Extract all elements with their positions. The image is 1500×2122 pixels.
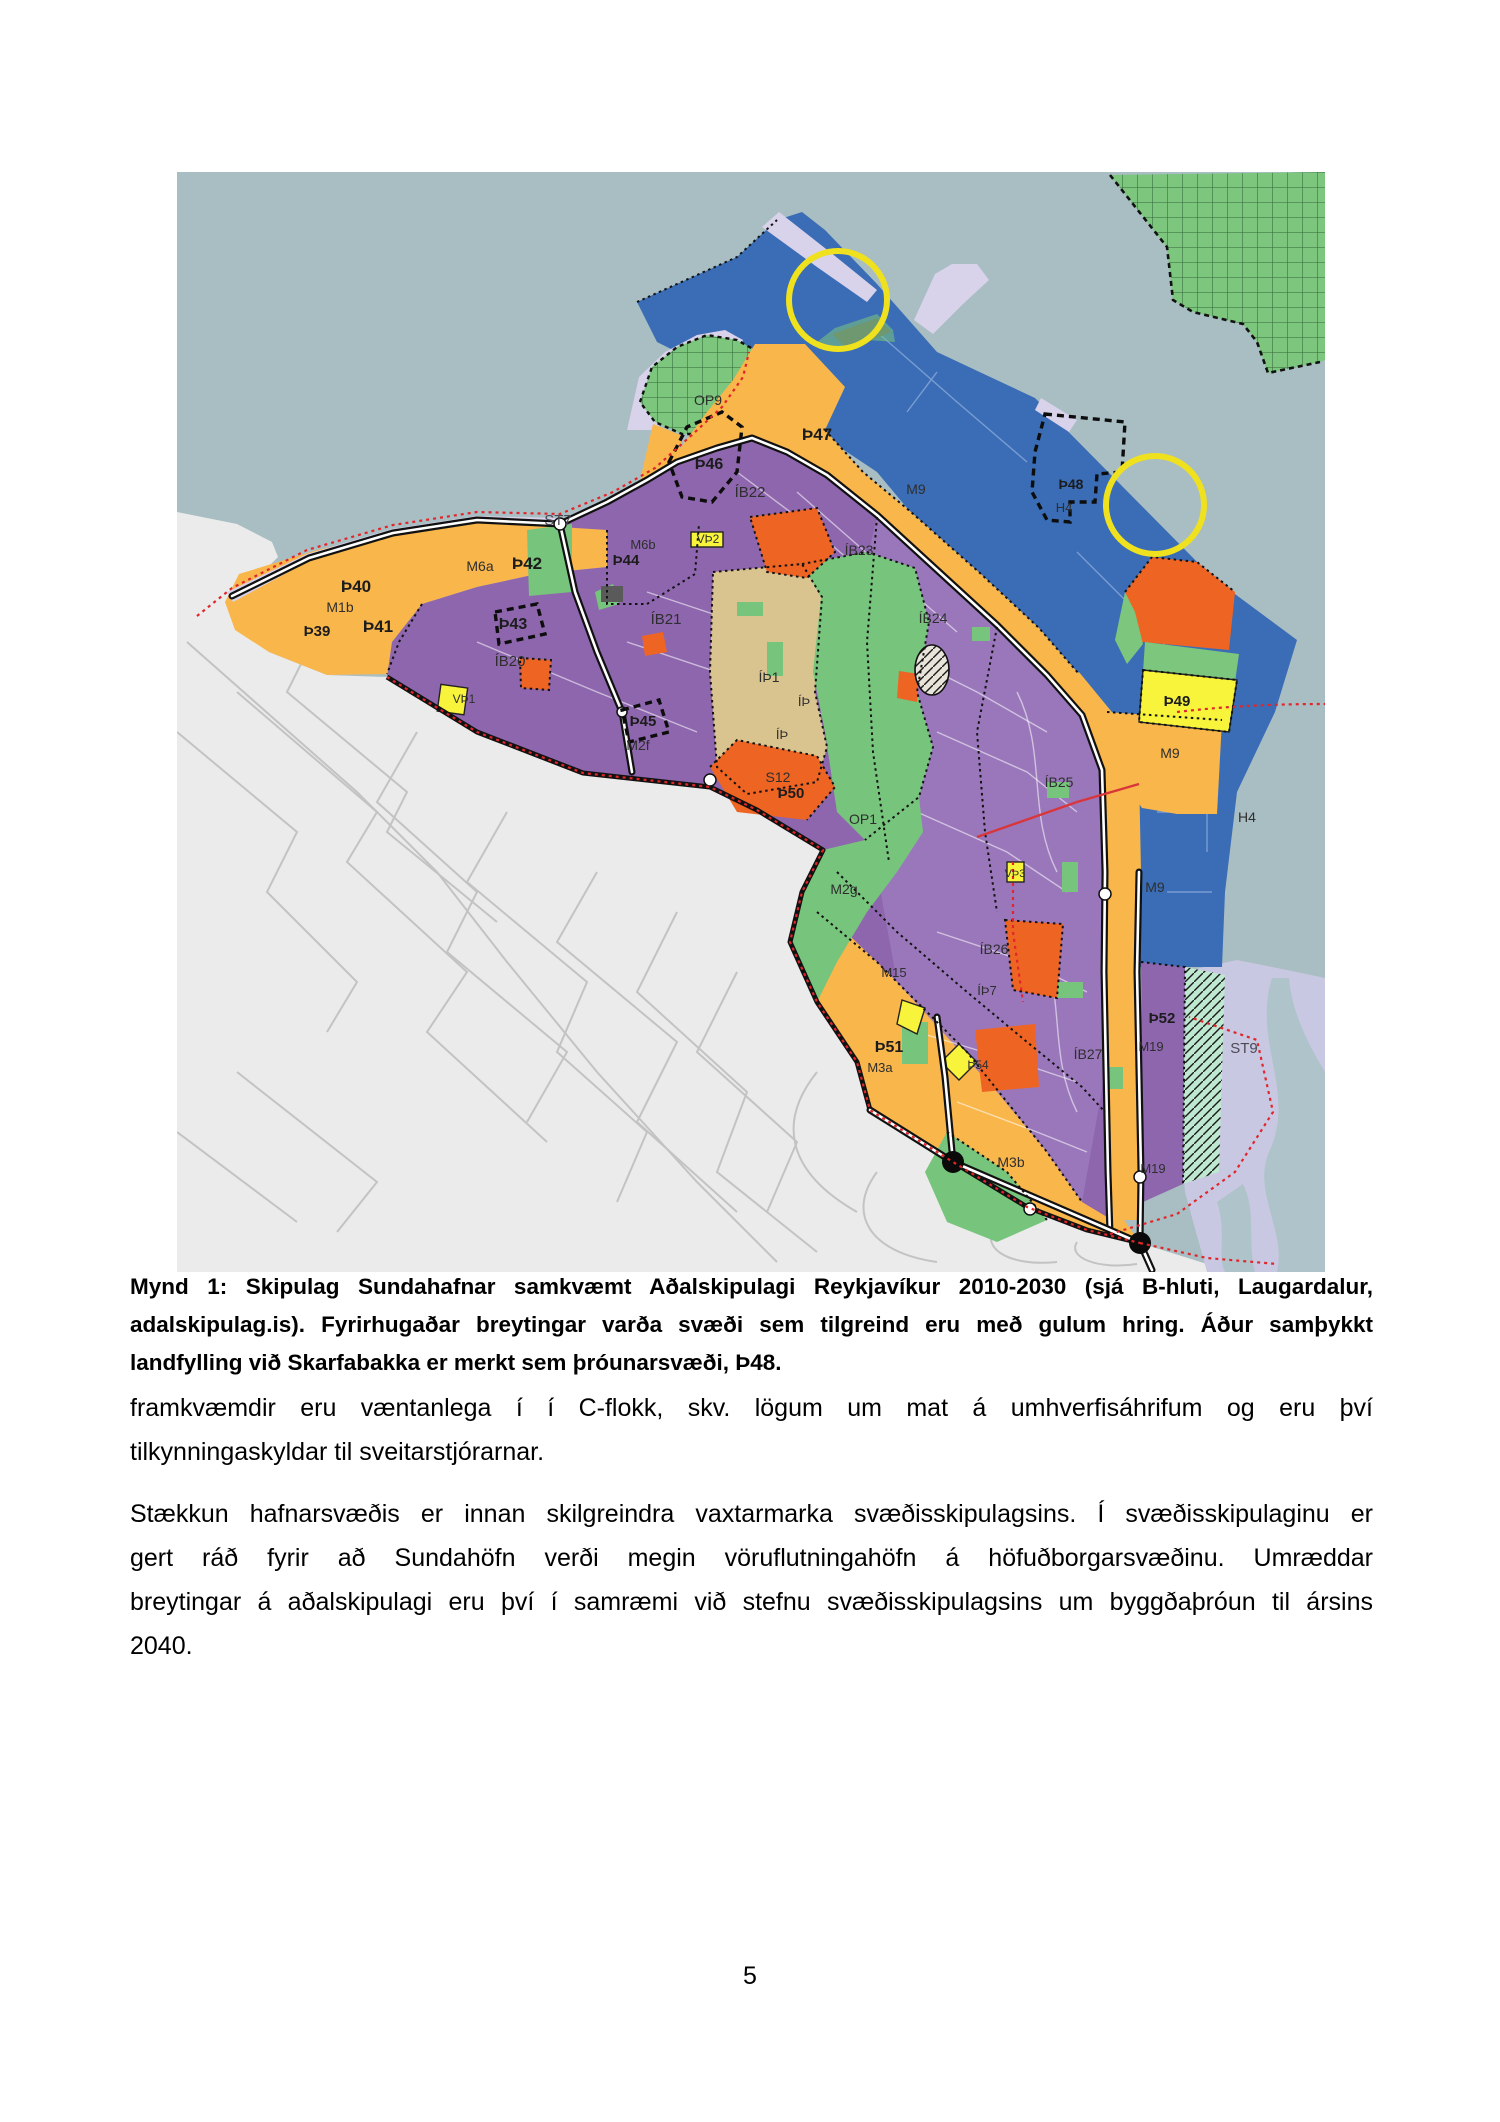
zone-label: M15 (881, 965, 906, 980)
zone-label: ÍB24 (919, 610, 948, 626)
dark-gray-chip (601, 586, 623, 602)
zone-label: ÍB25 (1045, 774, 1074, 790)
zone-label: OP1 (849, 811, 877, 827)
zone-label: OP9 (694, 392, 722, 408)
mint-strip-hatch (1183, 967, 1225, 1184)
zone-label: M6a (466, 558, 493, 574)
zone-label: Þ39 (304, 623, 331, 640)
caption-line: landfylling við Skarfabakka er merkt sem… (130, 1344, 1373, 1382)
zone-label: Þ40 (341, 577, 371, 596)
zone-label: Þ48 (1059, 476, 1084, 492)
zone-label: Þ46 (695, 456, 724, 473)
hatched-area (915, 645, 949, 695)
zone-label: ÍB23 (845, 542, 874, 558)
zone-label: VÞ3 (1005, 868, 1026, 880)
zone-label: M19 (1138, 1039, 1163, 1054)
body-line: tilkynningaskyldar til sveitarstjórarnar… (130, 1430, 1373, 1474)
zone-label: ÍÞ1 (758, 669, 779, 685)
zone-label: M3b (997, 1154, 1024, 1170)
zone-label: ÍÞ (798, 694, 810, 709)
zone-label: Þ42 (512, 554, 542, 573)
zone-label: Þ44 (613, 552, 640, 569)
paragraph-1: framkvæmdir eru væntanlega í í C-flokk, … (130, 1386, 1373, 1474)
zone-label: M9 (906, 481, 926, 497)
zone-label: ÍB27 (1074, 1046, 1103, 1062)
zone-label: ÍB20 (495, 653, 526, 670)
zone-label: Þ50 (778, 785, 805, 802)
zone-label: Þ49 (1164, 693, 1191, 710)
zone-label: ÍB21 (651, 611, 682, 628)
zone-label: Þ41 (363, 617, 393, 636)
zone-label: M3a (867, 1060, 893, 1075)
zone-label: Þ43 (499, 616, 528, 633)
zone-label: M9 (1145, 879, 1165, 895)
body-line: framkvæmdir eru væntanlega í í C-flokk, … (130, 1386, 1373, 1430)
zone-label: VÞ1 (453, 692, 476, 706)
zoning-map: ST7 Þ40 M1b Þ39 Þ41 M6a Þ42 Þ43 ÍB20 VÞ1… (177, 172, 1325, 1272)
zone-label: Þ54 (967, 1058, 989, 1072)
zone-label: M9 (1160, 745, 1180, 761)
zone-label: M6b (630, 537, 655, 552)
caption-line: adalskipulag.is). Fyrirhugaðar breytinga… (130, 1306, 1373, 1344)
zone-label: H4 (1238, 809, 1256, 825)
zone-label: ÍB26 (980, 941, 1009, 957)
figure-caption: Mynd 1: Skipulag Sundahafnar samkvæmt Að… (130, 1268, 1373, 1382)
zone-label: Þ45 (630, 713, 657, 730)
zone-label: Þ51 (875, 1039, 904, 1056)
page-number: 5 (0, 1962, 1500, 1991)
zone-label: ST9 (1230, 1040, 1258, 1057)
document-page: ST7 Þ40 M1b Þ39 Þ41 M6a Þ42 Þ43 ÍB20 VÞ1… (0, 0, 1500, 2122)
zone-label: M1b (326, 599, 353, 615)
zone-label: ÍB22 (735, 484, 766, 501)
body-line: breytingar á aðalskipulagi eru því í sam… (130, 1580, 1373, 1624)
body-line: gert ráð fyrir að Sundahöfn verði megin … (130, 1536, 1373, 1580)
figure-map: ST7 Þ40 M1b Þ39 Þ41 M6a Þ42 Þ43 ÍB20 VÞ1… (177, 172, 1325, 1272)
caption-line: Mynd 1: Skipulag Sundahafnar samkvæmt Að… (130, 1268, 1373, 1306)
zone-label: Þ47 (802, 425, 832, 444)
zone-label: Þ52 (1149, 1010, 1176, 1027)
zone-label: M2g (830, 881, 857, 897)
zone-label: M19 (1140, 1161, 1165, 1176)
zone-label: S12 (766, 769, 791, 785)
zone-label: ÍÞ (776, 727, 788, 742)
paragraph-2: Stækkun hafnarsvæðis er innan skilgreind… (130, 1492, 1373, 1668)
zone-label: ST7 (544, 512, 572, 529)
body-line: Stækkun hafnarsvæðis er innan skilgreind… (130, 1492, 1373, 1536)
zone-label: M2f (626, 737, 649, 753)
zone-label: VÞ2 (697, 532, 720, 546)
zone-label: H4 (1056, 500, 1073, 515)
zone-label: ÍÞ7 (977, 983, 997, 998)
body-line: 2040. (130, 1624, 1373, 1668)
